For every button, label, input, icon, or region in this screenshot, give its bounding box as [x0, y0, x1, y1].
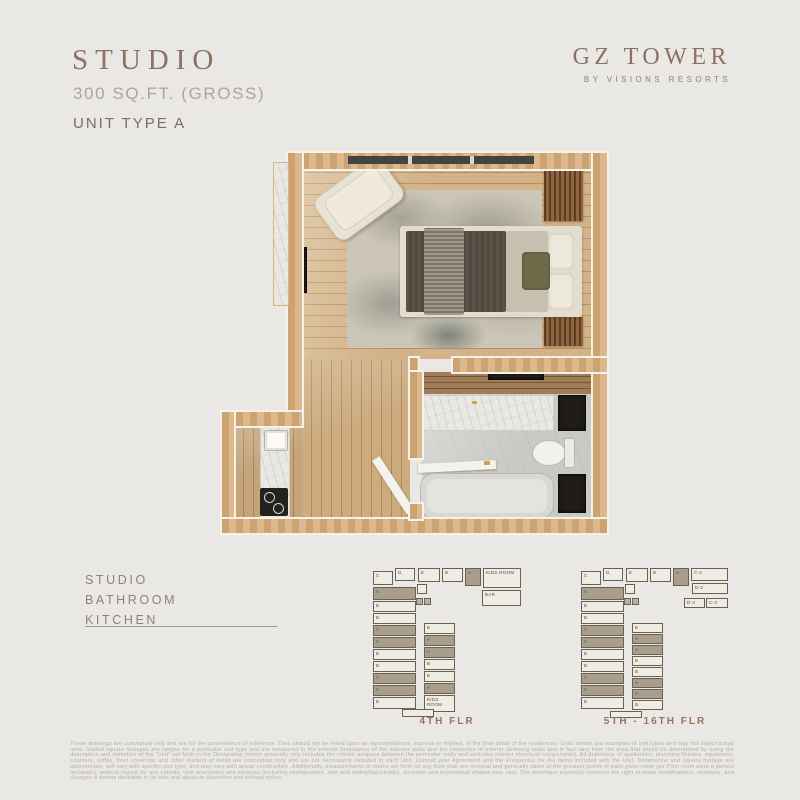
keyplan-unit-kids-room: KIDS ROOM	[483, 568, 521, 588]
keyplan-unit-a: A	[632, 645, 663, 655]
keyplan-unit-b: B	[581, 661, 624, 672]
bathroom-niche-bottom	[558, 474, 586, 513]
wall-kitchen-left	[222, 412, 234, 519]
keyplan-unit-a: A	[424, 647, 455, 658]
keyplan-cell	[417, 584, 427, 594]
wall-bathroom-left-a	[410, 372, 422, 458]
page-title: STUDIO	[72, 44, 220, 77]
keyplan-unit-b: B	[581, 697, 624, 709]
keyplan-unit-e: E	[418, 568, 440, 582]
keyplan-unit-b: B	[424, 659, 455, 670]
tv-niche	[302, 247, 307, 293]
nightstand-top	[544, 161, 583, 221]
keyplan-4th-floor-label: 4TH FLR	[372, 716, 522, 727]
keyplan-unit-d: D	[395, 568, 415, 581]
keyplan-unit-b: B	[373, 697, 416, 709]
room-legend: STUDIOBATHROOMKITCHEN	[85, 570, 177, 630]
kitchen-sink	[264, 430, 288, 451]
legend-divider	[85, 626, 277, 627]
keyplan-cell	[424, 598, 431, 605]
wall-bathroom-top-b	[453, 358, 607, 372]
wall-bathroom-left-b	[410, 504, 422, 519]
wall-kitchen-top	[222, 412, 302, 426]
keyplan-unit-a: A	[373, 673, 416, 684]
legend-item-bathroom: BATHROOM	[85, 590, 177, 610]
keyplan-unit-a: A	[581, 673, 624, 684]
floor-plan	[222, 143, 607, 535]
keyplan-unit-b: B	[424, 671, 455, 682]
closet-shelf	[488, 372, 544, 380]
keyplan-unit-b: B	[581, 613, 624, 624]
keyplan-unit-b: B	[373, 649, 416, 660]
unit-type-label: UNIT TYPE A	[73, 115, 186, 132]
keyplan-unit-c: C	[581, 571, 601, 585]
keyplan-unit-a: A	[581, 637, 624, 648]
accent-pillow	[522, 252, 550, 290]
keyplan-unit-b: B	[373, 613, 416, 624]
area-label: 300 SQ.FT. (GROSS)	[73, 84, 265, 104]
keyplan-unit-c-3: C-3	[706, 598, 728, 608]
keyplan-unit-a: A	[373, 625, 416, 636]
keyplan-unit-a: A	[465, 568, 481, 586]
keyplan-cell	[416, 598, 423, 605]
keyplan-cell	[632, 598, 639, 605]
keyplan-unit-a: A	[424, 683, 455, 694]
bed	[400, 226, 582, 317]
bed-pillow	[548, 273, 574, 310]
brand-name: GZ TOWER	[573, 44, 731, 71]
tub-faucet	[484, 461, 490, 465]
keyplan-unit-d-2: D-2	[692, 583, 728, 594]
wall-bathroom-top-a	[410, 358, 418, 372]
disclaimer-text: These drawings are conceptual only and a…	[70, 742, 734, 782]
keyplan-unit-a: A	[373, 637, 416, 648]
legend-item-studio: STUDIO	[85, 570, 177, 590]
nightstand-bottom	[544, 317, 583, 346]
toilet-tank	[564, 438, 575, 468]
keyplan-unit-a: A	[424, 635, 455, 646]
keyplan-4th-floor: CDEBAKIDS ROOMBARABBAABBAABBAABBAKIDS RO…	[372, 568, 522, 718]
keyplan-unit-a: A	[581, 685, 624, 696]
burner	[273, 503, 284, 514]
wall-bottom	[222, 519, 607, 533]
keyplan-unit-a: A	[581, 587, 624, 600]
bed-pillow	[548, 233, 574, 270]
bathtub-basin	[427, 479, 547, 513]
keyplan-unit-b: B	[373, 601, 416, 612]
keyplan-unit-b: B	[632, 700, 663, 710]
keyplan-unit-a: A	[673, 568, 689, 586]
legend-item-kitchen: KITCHEN	[85, 610, 177, 630]
brand-logo: GZ TOWER BY VISIONS RESORTS	[573, 44, 731, 84]
keyplan-unit-b: B	[632, 623, 663, 633]
keyplan-unit-bar: BAR	[482, 590, 521, 606]
brand-tagline: BY VISIONS RESORTS	[573, 75, 731, 84]
keyplan-unit-a: A	[632, 689, 663, 699]
burner	[264, 492, 275, 503]
keyplan-5th-16th-floor: CDEBAC-2D-2D-3C-3ABBAABBAABBAABBAAB	[580, 568, 730, 718]
keyplan-unit-b: B	[650, 568, 671, 582]
keyplan-unit-b: B	[581, 649, 624, 660]
keyplan-unit-c: C	[373, 571, 393, 585]
keyplan-unit-b: B	[632, 667, 663, 677]
bathroom-niche-top	[558, 395, 586, 431]
keyplan-unit-a: A	[373, 685, 416, 696]
keyplan-unit-b: B	[632, 656, 663, 666]
brochure-page: STUDIO 300 SQ.FT. (GROSS) UNIT TYPE A GZ…	[0, 0, 800, 800]
vanity-faucet	[472, 401, 477, 404]
keyplan-unit-c-2: C-2	[691, 568, 728, 581]
wall-right	[593, 153, 607, 533]
keyplan-5th-16th-floor-label: 5TH - 16TH FLR	[580, 716, 730, 727]
window	[348, 156, 534, 164]
terrace-strip	[274, 163, 288, 305]
keyplan-unit-a: A	[632, 678, 663, 688]
keyplan-unit-d-3: D-3	[684, 598, 705, 608]
keyplan-unit-a: A	[632, 634, 663, 644]
keyplan-unit-a: A	[581, 625, 624, 636]
wall-left	[288, 153, 302, 415]
cooktop	[260, 488, 288, 516]
bathtub	[420, 473, 554, 519]
keyplan-unit-b: B	[424, 623, 455, 634]
toilet	[532, 440, 566, 466]
keyplan-cell	[624, 598, 631, 605]
keyplan-unit-e: E	[626, 568, 648, 582]
keyplan-cell	[625, 584, 635, 594]
keyplan-unit-b: B	[442, 568, 463, 582]
vanity-counter	[422, 395, 554, 431]
bed-throw-blanket	[424, 228, 464, 315]
keyplan-unit-a: A	[373, 587, 416, 600]
keyplan-unit-b: B	[373, 661, 416, 672]
keyplan-unit-d: D	[603, 568, 623, 581]
keyplan-unit-b: B	[581, 601, 624, 612]
